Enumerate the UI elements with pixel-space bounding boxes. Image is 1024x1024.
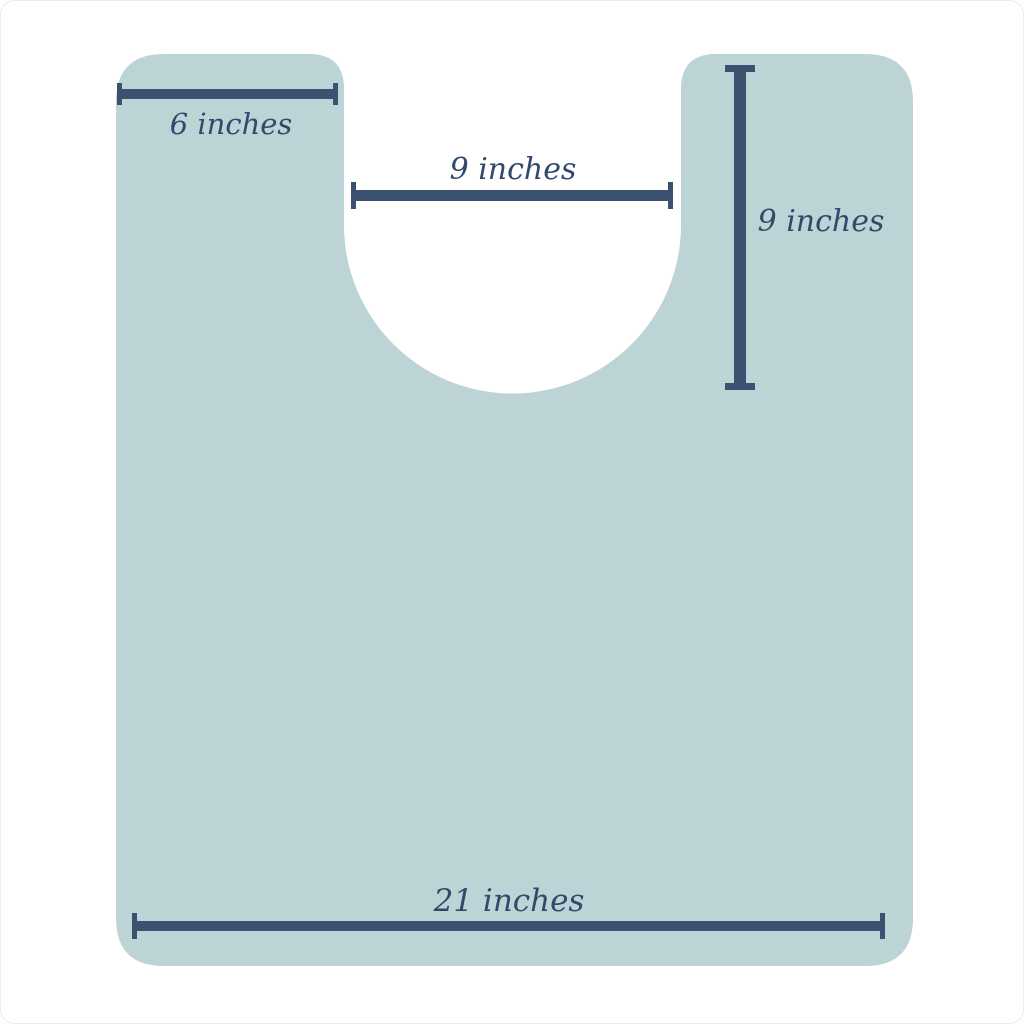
contour-mat-diagram: 6 inches 9 inches 9 inches 21 inches <box>1 1 1024 1024</box>
dimension-tick-right <box>333 83 338 105</box>
dimension-tick-right <box>880 913 885 939</box>
dimension-label: 6 inches <box>170 107 293 141</box>
dimension-tick-left <box>132 913 137 939</box>
dimension-tick-top <box>725 65 755 72</box>
dimension-label: 9 inches <box>758 204 885 239</box>
dimension-cutout-width: 9 inches <box>351 152 673 209</box>
dimension-tick-left <box>351 182 356 209</box>
dimension-line <box>353 190 671 201</box>
dimension-label: 9 inches <box>450 152 577 187</box>
diagram-canvas: 6 inches 9 inches 9 inches 21 inches <box>0 0 1024 1024</box>
dimension-tick-right <box>668 182 673 209</box>
dimension-tick-bottom <box>725 383 755 390</box>
dimension-tick-left <box>117 83 122 105</box>
dimension-line <box>734 69 746 387</box>
dimension-line <box>119 89 338 99</box>
dimension-line <box>134 921 884 931</box>
dimension-label: 21 inches <box>433 883 585 919</box>
